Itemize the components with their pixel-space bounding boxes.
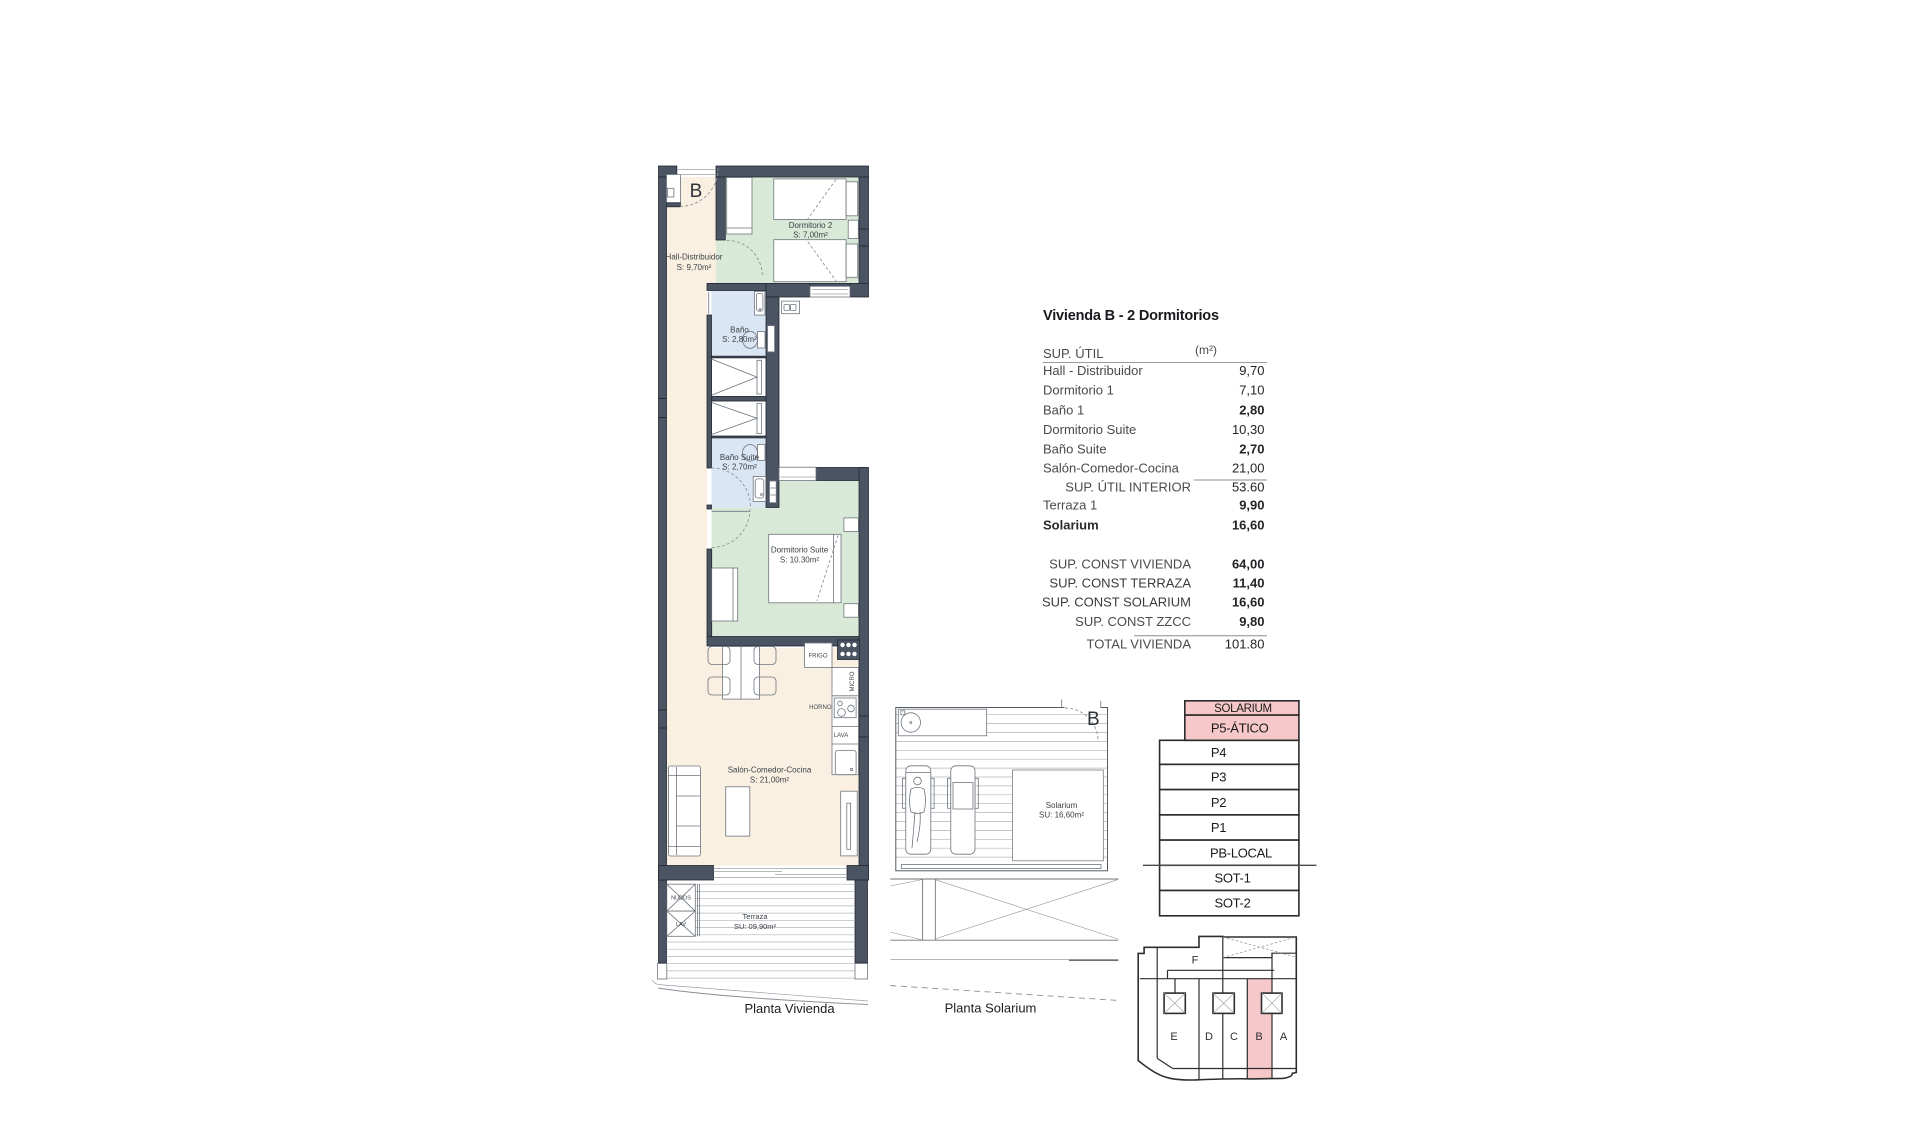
svg-text:(m²): (m²) [1195,343,1217,357]
svg-text:SUP. CONST VIVIENDA: SUP. CONST VIVIENDA [1049,556,1191,571]
svg-text:Baño 1: Baño 1 [1043,402,1084,417]
svg-text:SUP. CONST TERRAZA: SUP. CONST TERRAZA [1049,576,1191,591]
svg-text:P4: P4 [1211,745,1226,760]
svg-text:11,40: 11,40 [1233,576,1265,591]
svg-text:MICRO: MICRO [850,671,856,691]
svg-text:P3: P3 [1211,770,1226,785]
svg-text:9,70: 9,70 [1239,363,1264,378]
svg-text:Salón-Comedor-Cocina: Salón-Comedor-Cocina [1043,461,1180,476]
svg-text:Salón-Comedor-Cocina: Salón-Comedor-Cocina [728,766,812,775]
svg-text:P2: P2 [1211,795,1226,810]
svg-text:7,10: 7,10 [1239,383,1264,398]
svg-text:16,60: 16,60 [1232,595,1265,610]
svg-text:Planta Vivienda: Planta Vivienda [744,1001,835,1016]
svg-text:21,00: 21,00 [1232,461,1265,476]
svg-text:S: 9,70m²: S: 9,70m² [677,263,712,272]
svg-text:A: A [1280,1031,1288,1043]
svg-text:P5-ÁTICO: P5-ÁTICO [1211,720,1269,735]
svg-text:Baño Suite: Baño Suite [1043,441,1107,456]
svg-text:C: C [1230,1031,1238,1043]
svg-text:53.60: 53.60 [1232,480,1265,495]
svg-text:9,90: 9,90 [1239,497,1264,512]
svg-text:LAVA: LAVA [834,733,848,739]
svg-text:S: 10.30m²: S: 10.30m² [780,556,819,565]
svg-text:NUDOS: NUDOS [671,896,691,902]
svg-text:Dormitorio 1: Dormitorio 1 [1043,383,1114,398]
svg-text:P1: P1 [1211,820,1226,835]
svg-text:Planta Solarium: Planta Solarium [945,1001,1037,1016]
svg-text:PB-LOCAL: PB-LOCAL [1210,845,1272,860]
svg-text:S: 2,70m²: S: 2,70m² [722,463,757,472]
svg-text:Dormitorio Suite: Dormitorio Suite [1043,422,1136,437]
svg-text:SUP. CONST SOLARIUM: SUP. CONST SOLARIUM [1042,595,1191,610]
svg-text:SOT-2: SOT-2 [1214,896,1250,911]
svg-text:Terraza 1: Terraza 1 [1043,497,1097,512]
svg-text:SUP. CONST ZZCC: SUP. CONST ZZCC [1075,614,1191,629]
svg-text:S: 21,00m²: S: 21,00m² [750,776,789,785]
svg-text:SOLARIUM: SOLARIUM [1214,703,1272,715]
svg-text:Hall-Distribuidor: Hall-Distribuidor [666,253,723,262]
svg-text:101.80: 101.80 [1225,636,1265,651]
svg-text:Terraza: Terraza [742,912,768,921]
svg-text:9,80: 9,80 [1239,614,1264,629]
svg-text:D: D [1205,1031,1213,1043]
svg-text:B: B [690,181,703,202]
svg-text:Hall - Distribuidor: Hall - Distribuidor [1043,363,1143,378]
svg-text:FRIGO: FRIGO [809,654,828,660]
svg-text:Dormitorio Suite: Dormitorio Suite [771,546,829,555]
svg-text:16,60: 16,60 [1232,517,1265,532]
svg-text:2,80: 2,80 [1239,402,1264,417]
svg-text:SU: 09,90m²: SU: 09,90m² [734,922,777,931]
svg-text:SOT-1: SOT-1 [1214,871,1250,886]
svg-text:SU: 16,60m²: SU: 16,60m² [1039,811,1084,820]
svg-text:Solarium: Solarium [1046,801,1078,810]
svg-text:Solarium: Solarium [1043,517,1099,532]
svg-text:S: 2,80m²: S: 2,80m² [722,335,757,344]
svg-text:LAV: LAV [676,922,686,928]
svg-text:Vivienda B - 2 Dormitorios: Vivienda B - 2 Dormitorios [1043,308,1219,324]
svg-text:F: F [1192,955,1199,967]
svg-text:B: B [1255,1031,1262,1043]
svg-text:2,70: 2,70 [1239,441,1264,456]
svg-text:B: B [1087,709,1100,730]
svg-text:Baño Suite: Baño Suite [720,453,760,462]
svg-text:Baño: Baño [730,326,749,335]
svg-text:S: 7,00m²: S: 7,00m² [793,231,828,240]
svg-text:TOTAL VIVIENDA: TOTAL VIVIENDA [1086,636,1191,651]
svg-text:HORNO: HORNO [809,705,832,711]
svg-text:SUP. ÚTIL INTERIOR: SUP. ÚTIL INTERIOR [1065,480,1191,495]
svg-text:SUP. ÚTIL: SUP. ÚTIL [1043,346,1103,361]
svg-text:E: E [1170,1031,1177,1043]
svg-text:64,00: 64,00 [1232,556,1265,571]
svg-text:10,30: 10,30 [1232,422,1265,437]
svg-text:Dormitorio 2: Dormitorio 2 [789,221,833,230]
